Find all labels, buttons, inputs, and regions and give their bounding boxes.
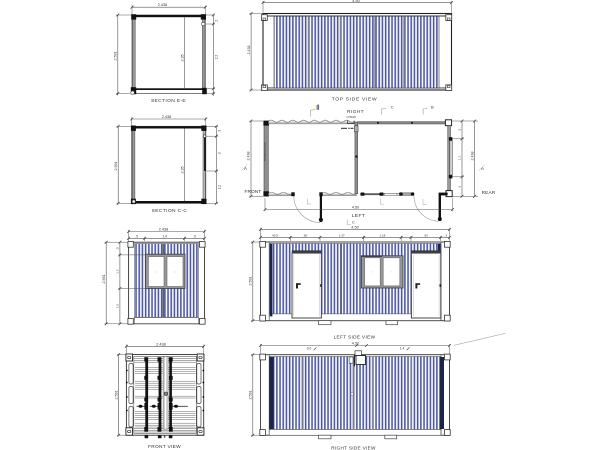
svg-text:2.438: 2.438	[159, 228, 169, 232]
svg-text:.5: .5	[457, 128, 461, 131]
svg-text:FRONT VIEW: FRONT VIEW	[148, 444, 181, 450]
svg-text:2.35: 2.35	[181, 55, 185, 62]
svg-text:2.591: 2.591	[114, 162, 118, 171]
svg-text:2.438: 2.438	[158, 3, 168, 7]
svg-text:.2: .2	[215, 19, 219, 22]
svg-text:LEFT: LEFT	[352, 213, 366, 219]
svg-text:2.35: 2.35	[181, 167, 185, 174]
svg-text:FRONT: FRONT	[245, 189, 262, 194]
svg-text:1.37: 1.37	[339, 233, 345, 237]
svg-text:2.591: 2.591	[249, 391, 253, 400]
svg-text:3.0: 3.0	[307, 346, 312, 350]
svg-text:4.50: 4.50	[352, 342, 359, 346]
svg-text:.5: .5	[193, 235, 196, 239]
svg-text:REAR: REAR	[482, 190, 496, 195]
svg-text:2.438: 2.438	[247, 46, 251, 55]
svg-text:2.591: 2.591	[102, 275, 106, 284]
svg-text:1.18: 1.18	[379, 233, 385, 237]
svg-text:2.2: 2.2	[215, 55, 219, 60]
svg-text:1.2: 1.2	[116, 269, 120, 274]
svg-text:2.438: 2.438	[162, 115, 172, 119]
svg-text:4.50: 4.50	[352, 0, 359, 3]
svg-text:2.438: 2.438	[470, 152, 474, 161]
svg-text:.9: .9	[217, 152, 221, 155]
svg-text:4.50: 4.50	[351, 226, 358, 230]
svg-text:.3: .3	[445, 233, 448, 237]
svg-text:1=5kW: 1=5kW	[346, 115, 356, 119]
svg-text:2.591: 2.591	[114, 52, 118, 61]
svg-text:1.4: 1.4	[162, 235, 167, 239]
svg-text:50x50x2440: 50x50x2440	[263, 142, 267, 161]
svg-text:.90: .90	[424, 233, 429, 237]
svg-text:1.0: 1.0	[116, 304, 120, 309]
svg-text:1.2: 1.2	[217, 185, 221, 190]
svg-text:.90: .90	[303, 233, 308, 237]
svg-text:RIGHT: RIGHT	[347, 109, 364, 115]
svg-text:2.438: 2.438	[156, 343, 166, 347]
svg-text:RIGHT SIDE VIEW: RIGHT SIDE VIEW	[331, 446, 376, 450]
svg-text:C: C	[391, 105, 394, 110]
svg-text:2.591: 2.591	[115, 391, 119, 400]
svg-text:2.438: 2.438	[247, 152, 251, 161]
svg-text:SECTION C-C: SECTION C-C	[152, 208, 188, 214]
svg-text:40.5: 40.5	[272, 233, 278, 237]
svg-text:.5: .5	[116, 247, 120, 250]
svg-text:B: B	[431, 105, 434, 110]
svg-text:.6: .6	[457, 185, 461, 188]
svg-text:LEFT SIDE VIEW: LEFT SIDE VIEW	[334, 334, 376, 339]
svg-text:4.50: 4.50	[352, 205, 359, 209]
svg-text:1.4: 1.4	[400, 346, 405, 350]
svg-text:.3: .3	[217, 130, 221, 133]
svg-text:.5: .5	[135, 235, 138, 239]
svg-text:1.1: 1.1	[457, 156, 461, 161]
svg-text:2.591: 2.591	[249, 277, 253, 286]
svg-text:C: C	[352, 221, 355, 225]
svg-text:TOP SIDE VIEW: TOP SIDE VIEW	[332, 96, 378, 102]
svg-text:SECTION E-E: SECTION E-E	[151, 98, 186, 104]
